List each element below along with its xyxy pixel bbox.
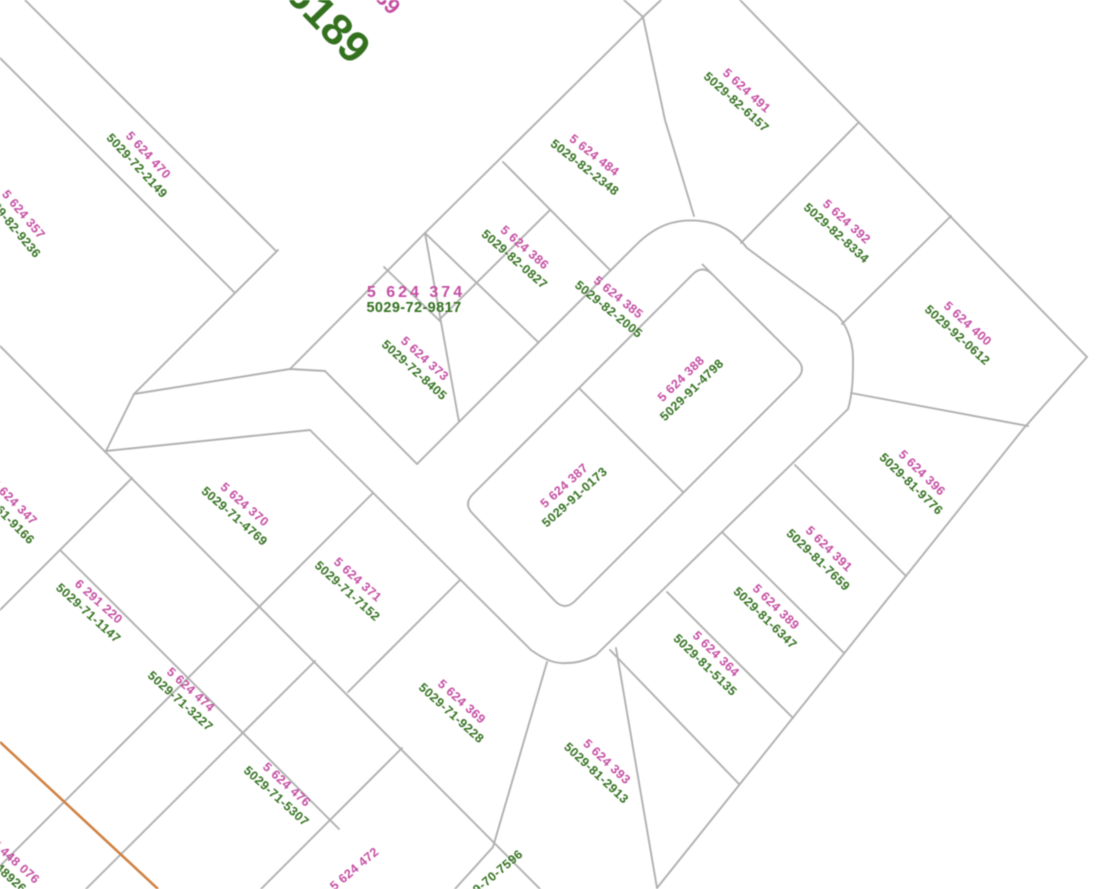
svg-text:5029-72-9817: 5029-72-9817 bbox=[366, 300, 461, 316]
svg-text:5 624 374: 5 624 374 bbox=[367, 284, 465, 301]
